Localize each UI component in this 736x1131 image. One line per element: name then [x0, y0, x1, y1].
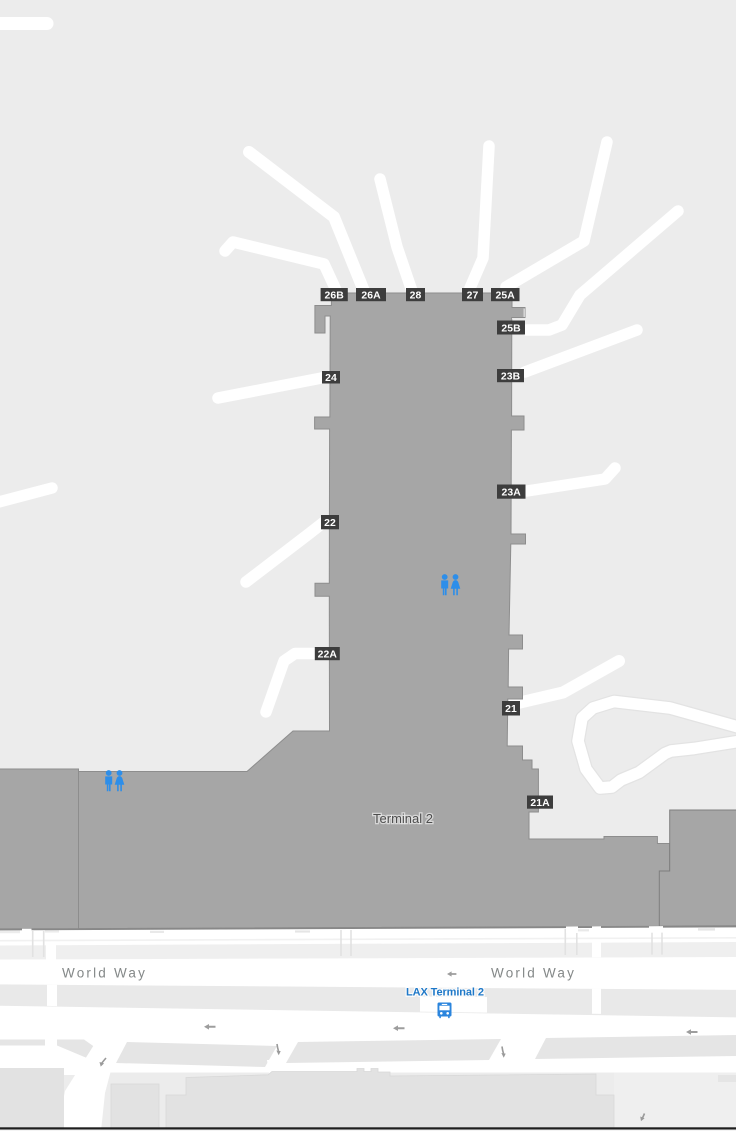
svg-text:23B: 23B: [501, 371, 521, 382]
svg-text:21A: 21A: [530, 798, 550, 809]
svg-text:World Way: World Way: [62, 966, 147, 981]
svg-text:22: 22: [324, 518, 336, 529]
svg-text:22A: 22A: [318, 649, 338, 660]
svg-text:World Way: World Way: [491, 966, 576, 981]
svg-text:26A: 26A: [361, 290, 381, 301]
svg-text:24: 24: [325, 373, 337, 384]
svg-text:25B: 25B: [501, 323, 521, 334]
svg-text:21: 21: [505, 704, 517, 715]
svg-text:27: 27: [467, 290, 479, 301]
svg-text:LAX Terminal 2: LAX Terminal 2: [406, 987, 484, 999]
svg-text:28: 28: [410, 290, 422, 301]
svg-text:25A: 25A: [496, 290, 516, 301]
svg-text:Terminal 2: Terminal 2: [373, 811, 433, 826]
svg-text:26B: 26B: [325, 290, 345, 301]
svg-text:23A: 23A: [502, 488, 522, 499]
